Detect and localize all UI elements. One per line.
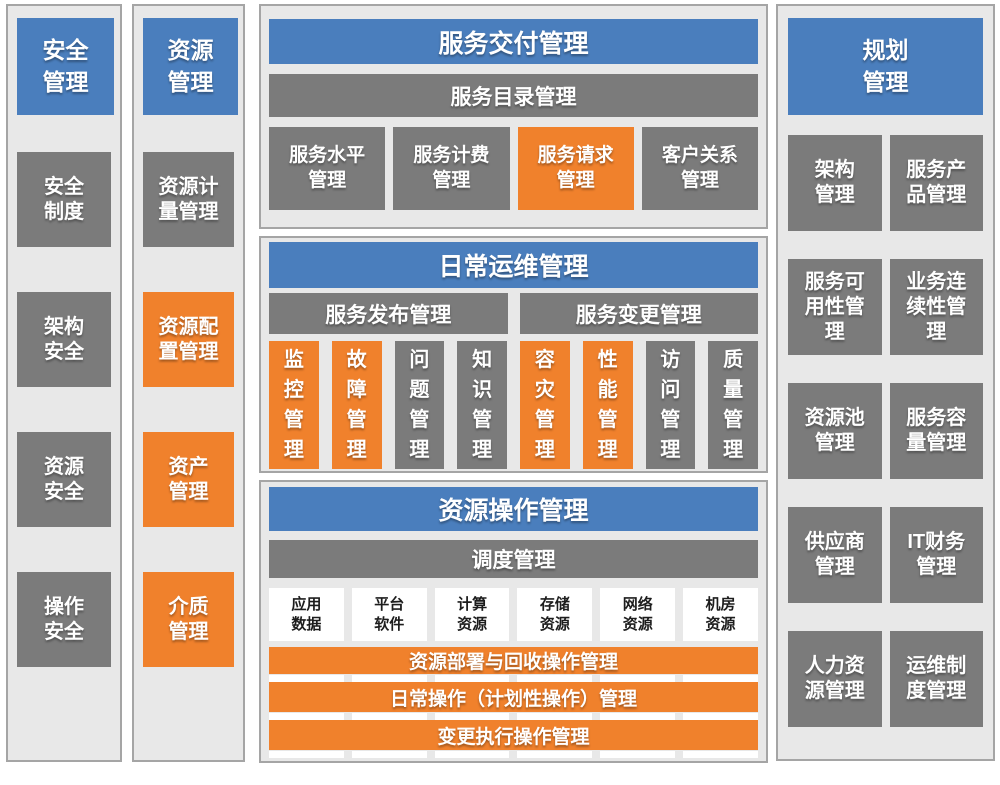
architecture-security-label: 架构 安全 (44, 315, 84, 365)
customer-relation-box: 客户关系 管理 (642, 127, 758, 210)
service-release-label: 服务发布管理 (325, 299, 451, 329)
separator-dash (600, 751, 675, 758)
separator-dash (517, 675, 592, 682)
monitoring-mgmt-box: 监控管理 (269, 341, 319, 469)
performance-mgmt-label: 性能管理 (596, 345, 619, 465)
resource-ops-header: 资源操作管理 (269, 487, 758, 531)
resource-types-row: 应用 数据 平台 软件 计算 资源 存储 资源 网络 资源 机房 资源 (269, 588, 758, 641)
incident-mgmt-box: 故障管理 (332, 341, 382, 469)
architecture-mgmt-label: 架构 管理 (815, 158, 855, 208)
resource-pool-mgmt-box: 资源池 管理 (788, 383, 882, 479)
incident-mgmt-label: 故障管理 (345, 345, 368, 465)
column-separator-row (269, 674, 758, 682)
separator-dash (269, 713, 344, 720)
media-mgmt-box: 介质 管理 (143, 572, 234, 667)
service-billing-box: 服务计费 管理 (393, 127, 509, 210)
separator-dash (352, 751, 427, 758)
separator-dash (600, 675, 675, 682)
service-availability-mgmt-box: 服务可 用性管 理 (788, 259, 882, 355)
scheduling-label: 调度管理 (472, 544, 556, 574)
service-capacity-mgmt-box: 服务容 量管理 (890, 383, 984, 479)
separator-dash (683, 713, 758, 720)
ops-policy-mgmt-label: 运维制 度管理 (906, 654, 966, 704)
hr-mgmt-label: 人力资 源管理 (805, 654, 865, 704)
service-capacity-mgmt-label: 服务容 量管理 (906, 406, 966, 456)
service-level-label: 服务水平 管理 (289, 144, 365, 193)
customer-relation-label: 客户关系 管理 (662, 144, 738, 193)
separator-dash (683, 751, 758, 758)
separator-dash (269, 675, 344, 682)
business-continuity-mgmt-label: 业务连 续性管 理 (906, 270, 966, 345)
media-mgmt-label: 介质 管理 (169, 595, 209, 645)
knowledge-mgmt-label: 知识管理 (471, 345, 494, 465)
separator-dash (352, 675, 427, 682)
operation-security-box: 操作 安全 (17, 572, 111, 667)
separator-dash (517, 713, 592, 720)
security-mgmt-header: 安全 管理 (17, 18, 114, 115)
network-resource-box: 网络 资源 (600, 588, 675, 641)
ops-policy-mgmt-box: 运维制 度管理 (890, 631, 984, 727)
planning-items-grid: 架构 管理 服务产 品管理 服务可 用性管 理 业务连 续性管 理 资源池 管理… (788, 135, 983, 727)
service-level-box: 服务水平 管理 (269, 127, 385, 210)
resource-pool-mgmt-label: 资源池 管理 (805, 406, 865, 456)
routine-ops-bar: 日常操作（计划性操作）管理 (269, 682, 758, 712)
disaster-recovery-mgmt-box: 容灾管理 (520, 341, 570, 469)
supplier-mgmt-label: 供应商 管理 (805, 530, 865, 580)
itsm-framework-diagram: 安全 管理 安全 制度 架构 安全 资源 安全 操作 安全 资源 管理 资源计 … (0, 0, 1000, 785)
supplier-mgmt-box: 供应商 管理 (788, 507, 882, 603)
separator-dash (517, 751, 592, 758)
resource-mgmt-header: 资源 管理 (143, 18, 238, 115)
planning-mgmt-header-label: 规划 管理 (863, 35, 909, 97)
monitoring-mgmt-label: 监控管理 (282, 345, 305, 465)
resource-ops-panel: 资源操作管理 调度管理 应用 数据 平台 软件 计算 资源 存储 资源 网络 资… (259, 480, 768, 763)
it-finance-mgmt-label: IT财务 管理 (907, 530, 965, 580)
security-mgmt-header-label: 安全 管理 (43, 35, 89, 97)
platform-software-box: 平台 软件 (352, 588, 427, 641)
resource-config-label: 资源配 置管理 (159, 315, 219, 365)
access-mgmt-box: 访问管理 (646, 341, 696, 469)
quality-mgmt-label: 质量管理 (722, 345, 745, 465)
service-delivery-header-label: 服务交付管理 (438, 24, 588, 60)
service-change-label: 服务变更管理 (576, 299, 702, 329)
hr-mgmt-box: 人力资 源管理 (788, 631, 882, 727)
security-policy-box: 安全 制度 (17, 152, 111, 247)
planning-mgmt-header: 规划 管理 (788, 18, 983, 115)
resource-metering-box: 资源计 量管理 (143, 152, 234, 247)
access-mgmt-label: 访问管理 (659, 345, 682, 465)
service-delivery-panel: 服务交付管理 服务目录管理 服务水平 管理 服务计费 管理 服务请求 管理 客户… (259, 4, 768, 229)
separator-dash (435, 675, 510, 682)
separator-dash (352, 713, 427, 720)
operation-security-label: 操作 安全 (44, 595, 84, 645)
disaster-recovery-mgmt-label: 容灾管理 (533, 345, 556, 465)
resource-metering-label: 资源计 量管理 (159, 175, 219, 225)
business-continuity-mgmt-box: 业务连 续性管 理 (890, 259, 984, 355)
service-billing-label: 服务计费 管理 (413, 144, 489, 193)
service-catalog-bar: 服务目录管理 (269, 74, 758, 117)
service-delivery-items-row: 服务水平 管理 服务计费 管理 服务请求 管理 客户关系 管理 (269, 127, 758, 210)
daily-ops-header-label: 日常运维管理 (438, 247, 588, 283)
daily-ops-header: 日常运维管理 (269, 242, 758, 288)
app-data-label: 应用 数据 (291, 595, 321, 634)
knowledge-mgmt-box: 知识管理 (457, 341, 507, 469)
resource-security-label: 资源 安全 (44, 455, 84, 505)
service-delivery-header: 服务交付管理 (269, 19, 758, 64)
service-request-label: 服务请求 管理 (538, 144, 614, 193)
datacenter-resource-box: 机房 资源 (683, 588, 758, 641)
architecture-security-box: 架构 安全 (17, 292, 111, 387)
service-product-mgmt-box: 服务产 品管理 (890, 135, 984, 231)
service-product-mgmt-label: 服务产 品管理 (906, 158, 966, 208)
network-resource-label: 网络 资源 (623, 595, 653, 634)
security-policy-label: 安全 制度 (44, 175, 84, 225)
storage-resource-label: 存储 资源 (540, 595, 570, 634)
resource-column-panel: 资源 管理 资源计 量管理 资源配 置管理 资产 管理 介质 管理 (132, 4, 245, 762)
service-request-box: 服务请求 管理 (518, 127, 634, 210)
resource-config-box: 资源配 置管理 (143, 292, 234, 387)
storage-resource-box: 存储 资源 (517, 588, 592, 641)
separator-dash (269, 751, 344, 758)
daily-ops-panel: 日常运维管理 服务发布管理 服务变更管理 监控管理 故障管理 问题管理 知识管理 (259, 236, 768, 473)
column-separator-row (269, 712, 758, 720)
resource-mgmt-header-label: 资源 管理 (168, 35, 214, 97)
deploy-reclaim-ops-label: 资源部署与回收操作管理 (409, 647, 618, 674)
performance-mgmt-box: 性能管理 (583, 341, 633, 469)
column-separator-row (269, 750, 758, 758)
service-availability-mgmt-label: 服务可 用性管 理 (805, 270, 865, 345)
daily-ops-bars-row: 服务发布管理 服务变更管理 (269, 293, 758, 334)
platform-software-label: 平台 软件 (374, 595, 404, 634)
quality-mgmt-box: 质量管理 (708, 341, 758, 469)
change-exec-ops-bar: 变更执行操作管理 (269, 720, 758, 750)
deploy-reclaim-ops-bar: 资源部署与回收操作管理 (269, 647, 758, 674)
compute-resource-box: 计算 资源 (435, 588, 510, 641)
security-column-panel: 安全 管理 安全 制度 架构 安全 资源 安全 操作 安全 (6, 4, 122, 762)
problem-mgmt-box: 问题管理 (395, 341, 445, 469)
resource-security-box: 资源 安全 (17, 432, 111, 527)
asset-mgmt-label: 资产 管理 (169, 455, 209, 505)
compute-resource-label: 计算 资源 (457, 595, 487, 634)
separator-dash (600, 713, 675, 720)
scheduling-bar: 调度管理 (269, 540, 758, 578)
datacenter-resource-label: 机房 资源 (706, 595, 736, 634)
architecture-mgmt-box: 架构 管理 (788, 135, 882, 231)
planning-column-panel: 规划 管理 架构 管理 服务产 品管理 服务可 用性管 理 业务连 续性管 理 … (776, 4, 995, 761)
separator-dash (435, 751, 510, 758)
service-release-bar: 服务发布管理 (269, 293, 508, 334)
it-finance-mgmt-box: IT财务 管理 (890, 507, 984, 603)
daily-ops-items-row: 监控管理 故障管理 问题管理 知识管理 容灾管理 性能管理 访问管理 质量管理 (269, 341, 758, 469)
separator-dash (683, 675, 758, 682)
separator-dash (435, 713, 510, 720)
routine-ops-label: 日常操作（计划性操作）管理 (390, 684, 637, 711)
service-catalog-label: 服务目录管理 (451, 81, 577, 111)
service-change-bar: 服务变更管理 (520, 293, 759, 334)
resource-ops-header-label: 资源操作管理 (438, 491, 588, 527)
problem-mgmt-label: 问题管理 (408, 345, 431, 465)
change-exec-ops-label: 变更执行操作管理 (437, 722, 589, 749)
app-data-box: 应用 数据 (269, 588, 344, 641)
asset-mgmt-box: 资产 管理 (143, 432, 234, 527)
